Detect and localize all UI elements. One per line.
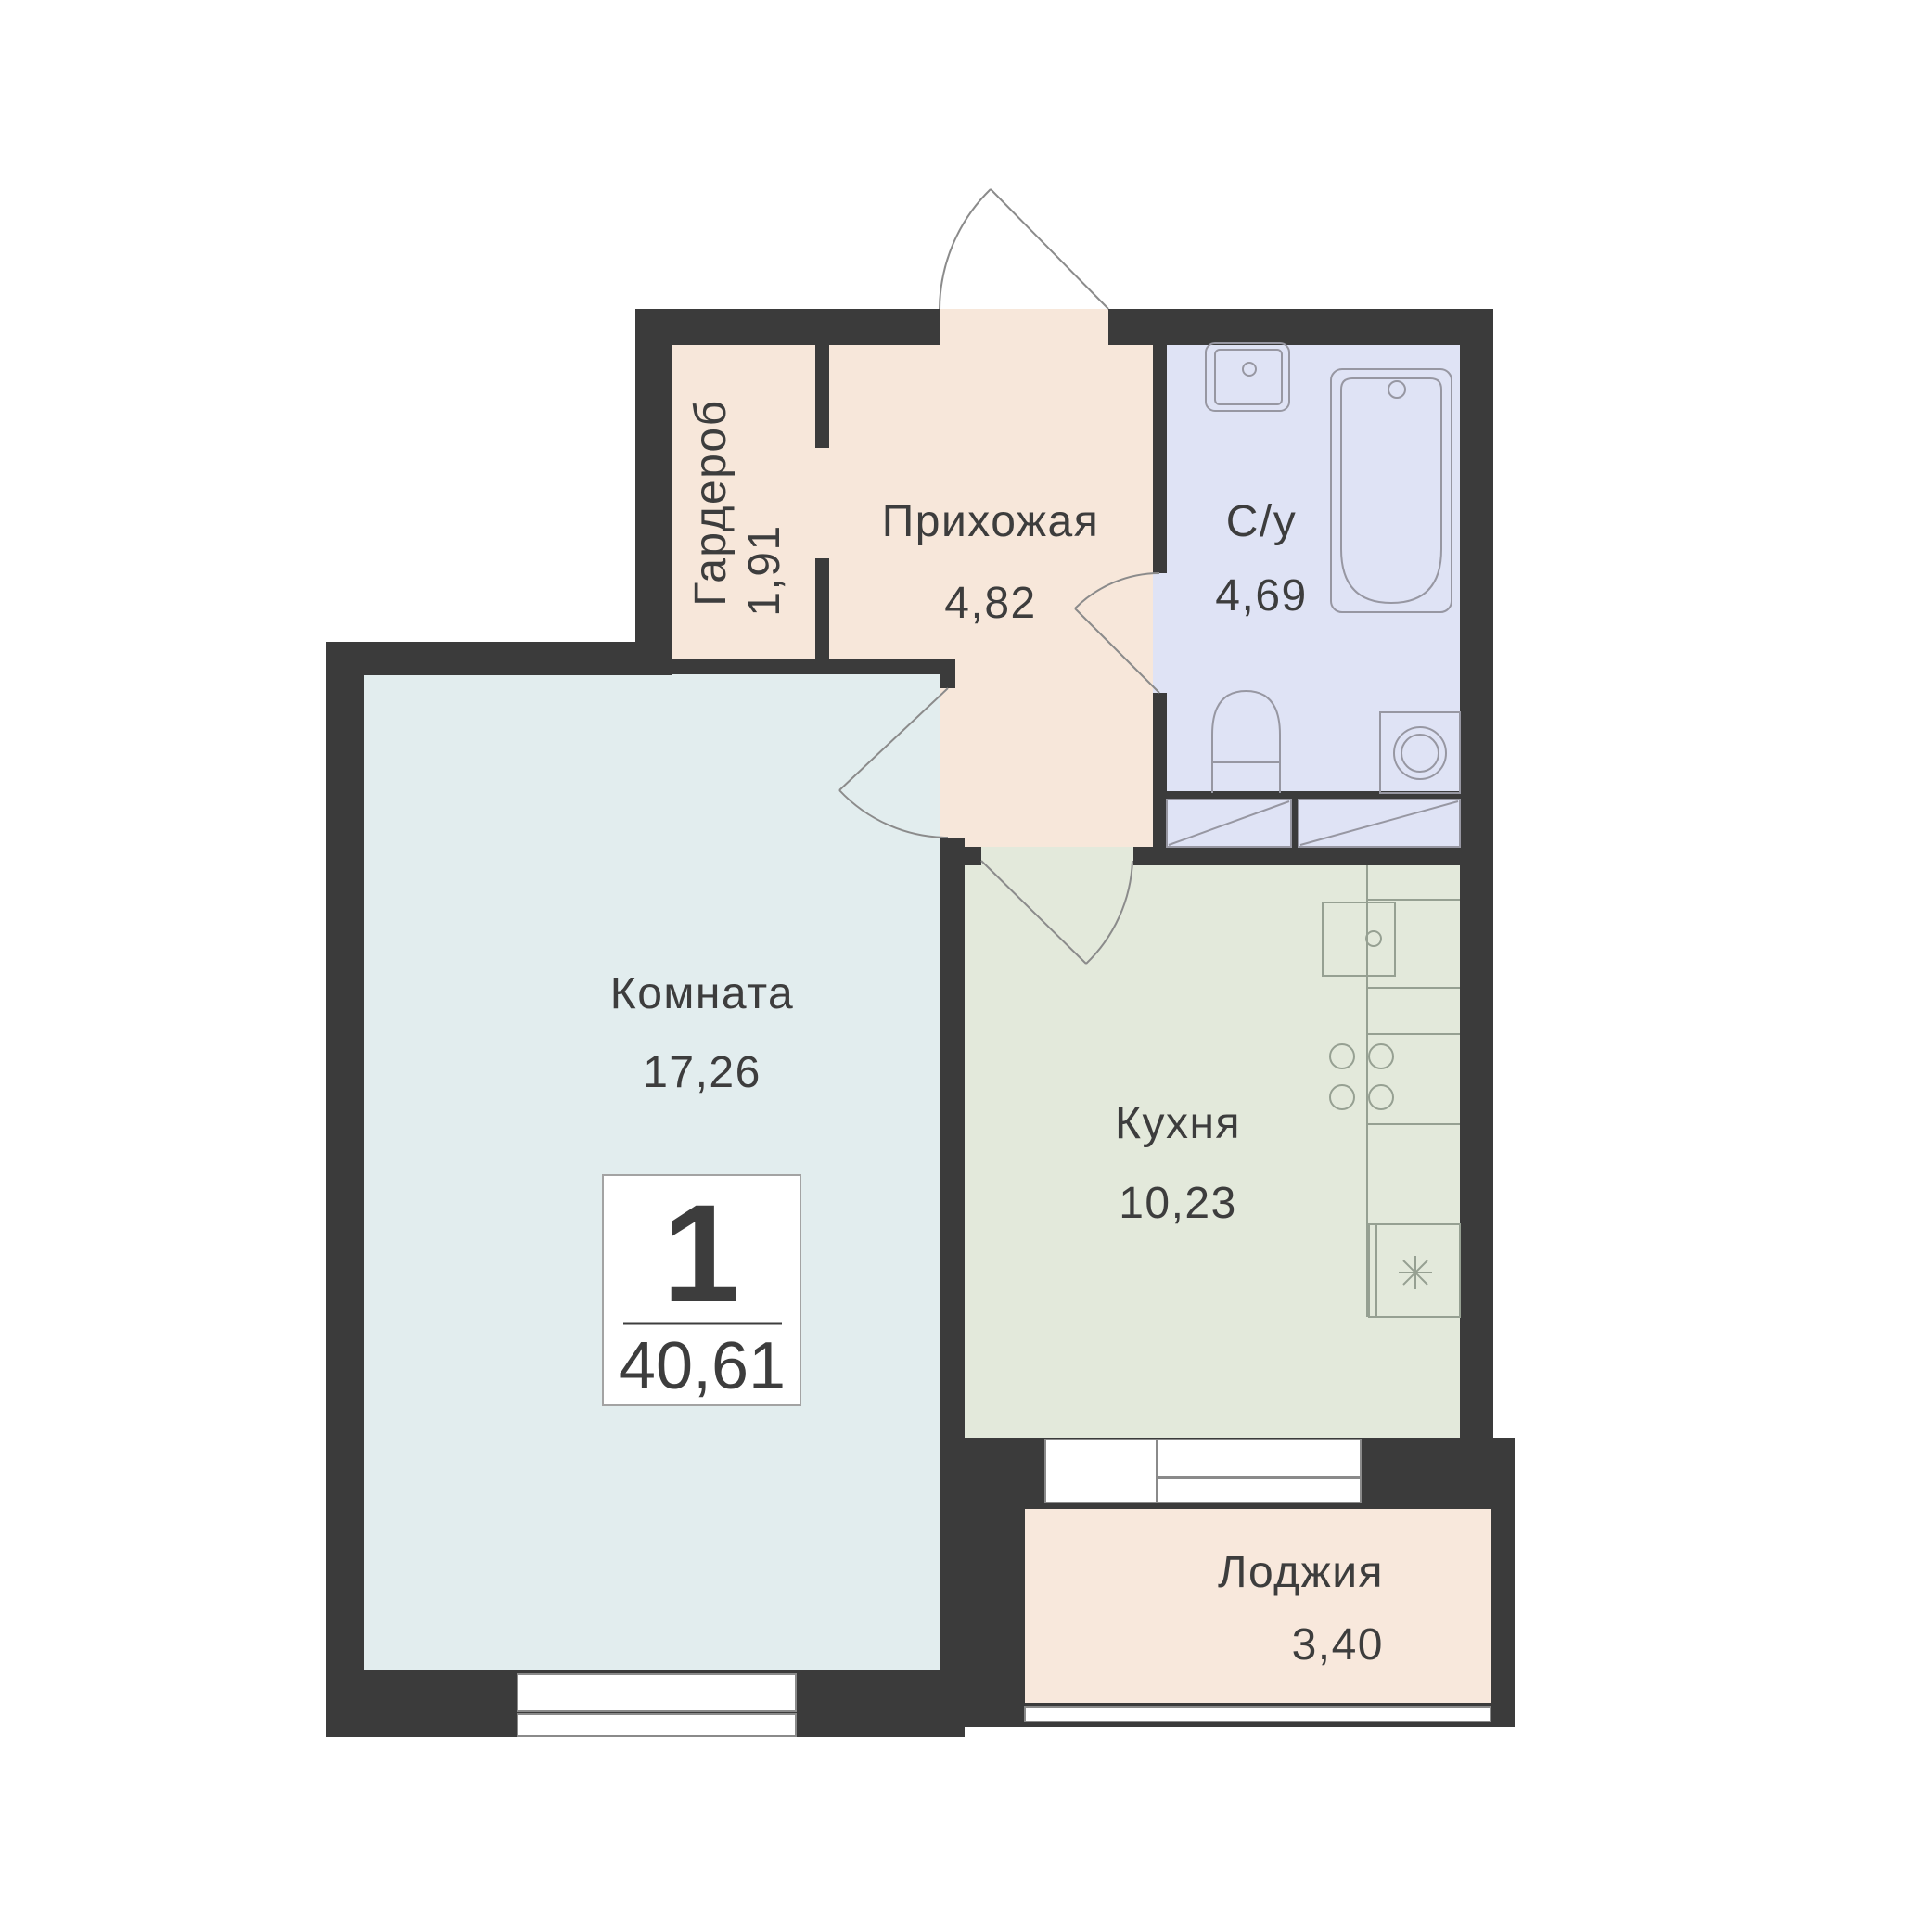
entry-door-icon bbox=[940, 189, 1108, 309]
wall-segment bbox=[672, 659, 955, 674]
living-room-window-inner bbox=[518, 1714, 796, 1736]
wardrobe-area: 1,91 bbox=[740, 524, 789, 616]
wall-segment bbox=[1491, 1484, 1515, 1727]
wall-segment bbox=[326, 642, 672, 675]
living-room-area: 17,26 bbox=[643, 1048, 761, 1097]
floor-plan-page: 1 40,61 Гардероб 1,91 Прихожая 4,82 С/у … bbox=[0, 0, 1932, 1932]
badge-rooms-count: 1 bbox=[662, 1175, 739, 1331]
wall-segment bbox=[1291, 800, 1299, 847]
wall-segment bbox=[815, 558, 829, 659]
wall-segment bbox=[940, 674, 955, 688]
balcony-window-upper bbox=[1157, 1439, 1361, 1477]
living-room-window-outer bbox=[518, 1674, 796, 1711]
entry-door-leaf bbox=[991, 189, 1108, 309]
wall-segment bbox=[1153, 693, 1167, 847]
wardrobe-label: Гардероб bbox=[686, 399, 736, 606]
wall-segment bbox=[1153, 345, 1167, 573]
wall-segment bbox=[965, 1438, 1025, 1727]
wall-segment bbox=[953, 847, 981, 865]
wall-segment bbox=[635, 309, 940, 345]
wall-segment bbox=[1108, 309, 1493, 345]
badge-total-area: 40,61 bbox=[619, 1329, 786, 1403]
wall-segment bbox=[635, 309, 672, 675]
vent-shafts bbox=[1167, 800, 1460, 847]
living-room-label: Комната bbox=[610, 969, 794, 1018]
loggia-label: Лоджия bbox=[1218, 1548, 1384, 1597]
wall-segment bbox=[815, 345, 829, 448]
entry-door-arc bbox=[940, 189, 991, 309]
living-room-floor bbox=[364, 674, 940, 1671]
hallway-corridor-floor bbox=[940, 659, 1153, 847]
bathroom-label: С/у bbox=[1226, 497, 1298, 546]
loggia-window bbox=[1025, 1707, 1491, 1721]
wall-segment bbox=[940, 838, 965, 1737]
bathroom-area: 4,69 bbox=[1215, 571, 1307, 621]
snowflake-icon bbox=[1399, 1256, 1432, 1289]
hallway-label: Прихожая bbox=[882, 497, 1099, 546]
loggia-area: 3,40 bbox=[1292, 1620, 1384, 1670]
balcony-window-lower bbox=[1157, 1478, 1361, 1503]
wall-segment bbox=[1133, 847, 1493, 865]
loggia-floor bbox=[1025, 1509, 1491, 1705]
wall-segment bbox=[1460, 309, 1493, 1484]
wall-segment bbox=[326, 642, 364, 1737]
balcony-door bbox=[1045, 1439, 1157, 1503]
entry-opening-floor bbox=[940, 309, 1108, 345]
kitchen-area: 10,23 bbox=[1119, 1179, 1237, 1228]
kitchen-label: Кухня bbox=[1115, 1099, 1241, 1148]
hallway-area: 4,82 bbox=[944, 579, 1036, 628]
area-badge: 1 40,61 bbox=[603, 1175, 800, 1405]
floor-plan: 1 40,61 Гардероб 1,91 Прихожая 4,82 С/у … bbox=[0, 0, 1932, 1932]
